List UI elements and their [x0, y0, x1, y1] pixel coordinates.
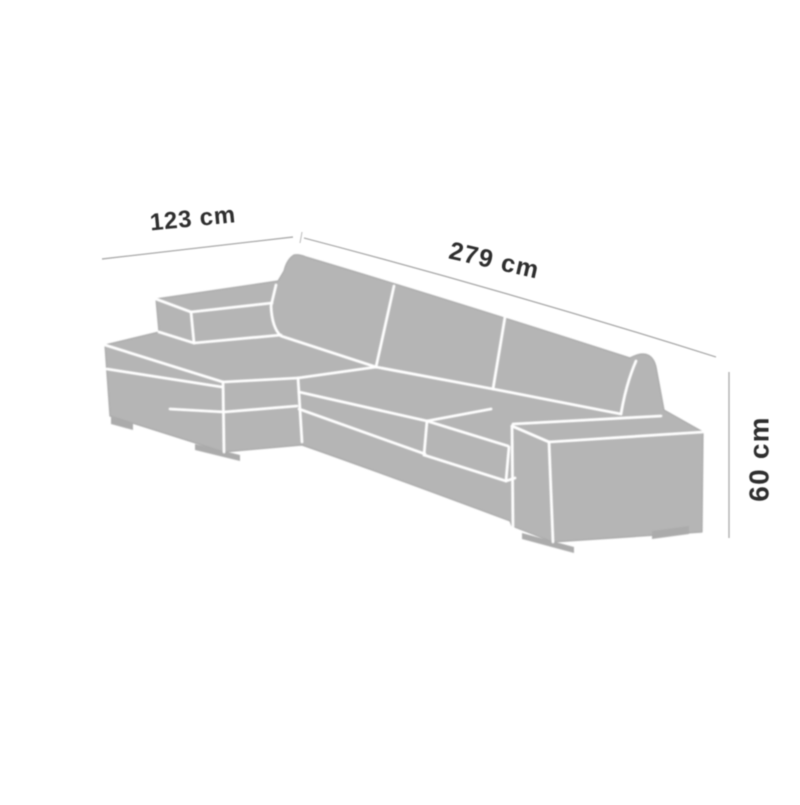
- svg-text:279 cm: 279 cm: [446, 237, 542, 285]
- svg-text:123 cm: 123 cm: [149, 201, 237, 236]
- svg-text:60 cm: 60 cm: [743, 416, 774, 501]
